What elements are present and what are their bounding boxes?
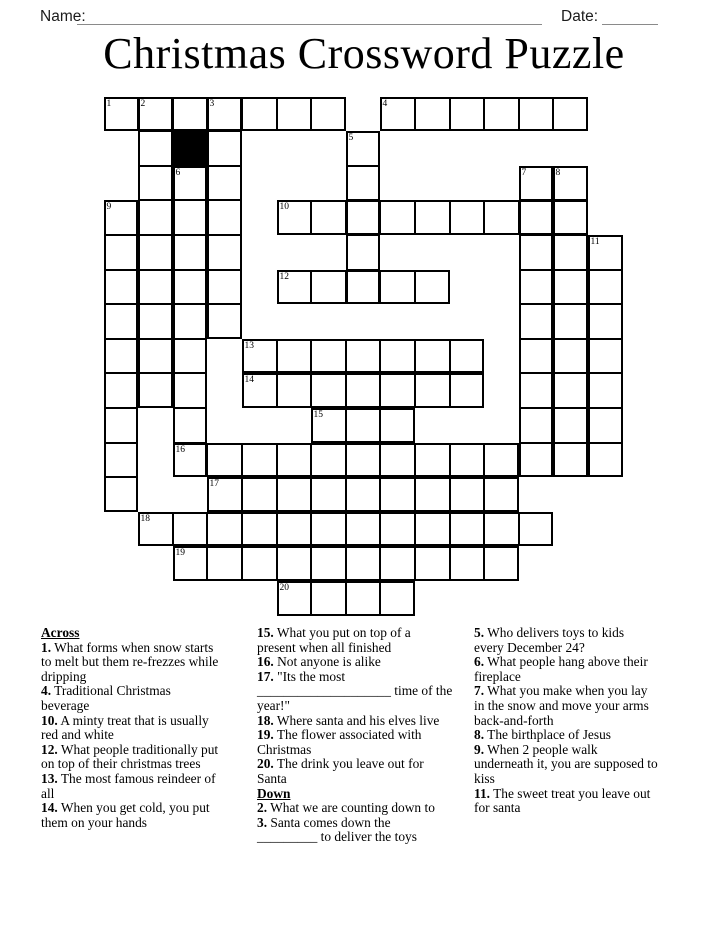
grid-cell [484,443,519,477]
grid-cell [415,200,450,235]
grid-cell [553,339,588,373]
grid-cell [104,408,138,443]
grid-cell [104,373,138,408]
grid-cell [277,512,311,546]
clue-text: What forms when snow starts to melt but … [41,640,218,684]
grid-cell [104,270,138,304]
grid-cell [519,97,553,131]
grid-cell [553,270,588,304]
grid-cell [207,166,242,200]
grid-cell [311,546,346,581]
across-header: Across [41,626,239,641]
cell-number: 11 [591,237,600,247]
cell-number: 4 [383,99,388,109]
clue-text: The drink you leave out for Santa [257,756,424,786]
clue-text: What people hang above their fireplace [474,654,648,684]
grid-cell [311,581,346,616]
clue-item: 12. What people traditionally put on top… [41,743,239,772]
clue-number: 4. [41,683,51,698]
cell-number: 14 [245,375,255,385]
grid-cell [380,200,415,235]
grid-cell [207,131,242,166]
grid-cell [380,581,415,616]
cell-number: 5 [349,133,354,143]
grid-cell [450,339,484,373]
grid-cell [311,200,346,235]
clue-item: 4. Traditional Christmas beverage [41,684,239,713]
grid-cell [311,339,346,373]
clue-number: 8. [474,727,484,742]
grid-cell [104,477,138,512]
grid-cell [519,304,553,339]
grid-cell [450,97,484,131]
cell-number: 8 [556,168,561,178]
clue-number: 3. [257,815,267,830]
grid-cell [588,373,623,408]
grid-cell [415,546,450,581]
clue-text: What people traditionally put on top of … [41,742,218,772]
cell-number: 7 [522,168,527,178]
grid-cell [346,443,380,477]
grid-cell [138,131,173,166]
clue-number: 20. [257,756,274,771]
cell-number: 17 [210,479,220,489]
clue-text: Santa comes down the _________ to delive… [257,815,417,845]
clue-text: What we are counting down to [270,800,435,815]
clue-number: 1. [41,640,51,655]
clue-text: Where santa and his elves live [277,713,440,728]
grid-cell [380,443,415,477]
clue-item: 5. Who delivers toys to kids every Decem… [474,626,671,655]
grid-cell [311,270,346,304]
grid-cell [553,443,588,477]
clue-number: 5. [474,625,484,640]
grid-cell [346,200,380,235]
grid-cell [346,408,380,443]
grid-cell [277,339,311,373]
grid-cell [311,443,346,477]
grid-cell [207,443,242,477]
grid-cell [519,200,553,235]
grid-cell [380,373,415,408]
grid-cell [588,443,623,477]
grid-cell [311,477,346,512]
grid-cell [553,97,588,131]
grid-cell [173,97,207,131]
grid-cell [277,477,311,512]
clue-number: 2. [257,800,267,815]
grid-cell [242,512,277,546]
grid-cell [242,97,277,131]
clue-item: 10. A minty treat that is usually red an… [41,714,239,743]
clue-text: When you get cold, you put them on your … [41,800,210,830]
clue-text: "Its the most ____________________ time … [257,669,452,713]
grid-cell [138,373,173,408]
grid-cell [173,373,207,408]
grid-cell [380,270,415,304]
grid-cell [450,477,484,512]
clue-number: 9. [474,742,484,757]
grid-cell [519,443,553,477]
cell-number: 18 [141,514,151,524]
clue-number: 14. [41,800,58,815]
clues-column-2: 15. What you put on top of a present whe… [257,626,470,845]
grid-cell [415,373,450,408]
grid-cell [519,408,553,443]
grid-cell [346,166,380,200]
grid-cell [207,200,242,235]
clue-number: 11. [474,786,490,801]
grid-cell [104,235,138,270]
grid-cell [519,235,553,270]
grid-cell [484,546,519,581]
clue-number: 7. [474,683,484,698]
grid-cell [588,408,623,443]
grid-cell [415,477,450,512]
grid-cell [380,512,415,546]
grid-cell [588,270,623,304]
grid-cell [173,235,207,270]
clue-text: The most famous reindeer of all [41,771,216,801]
clue-text: What you put on top of a present when al… [257,625,411,655]
cell-number: 13 [245,341,255,351]
grid-cell [242,477,277,512]
grid-cell [173,200,207,235]
grid-cell [138,270,173,304]
clue-text: Not anyone is alike [277,654,381,669]
grid-cell [415,270,450,304]
clue-item: 20. The drink you leave out for Santa [257,757,470,786]
clue-item: 13. The most famous reindeer of all [41,772,239,801]
grid-cell [519,339,553,373]
grid-cell [484,97,519,131]
grid-cell [138,339,173,373]
grid-cell [311,97,346,131]
grid-cell [519,270,553,304]
grid-cell [519,373,553,408]
grid-cell [553,304,588,339]
grid-cell [207,304,242,339]
grid-cell [380,339,415,373]
black-cell [173,131,207,166]
clue-item: 7. What you make when you lay in the sno… [474,684,671,728]
clue-text: The sweet treat you leave out for santa [474,786,650,816]
grid-cell [277,546,311,581]
cell-number: 3 [210,99,215,109]
clue-number: 17. [257,669,274,684]
grid-cell [104,443,138,477]
grid-cell [415,97,450,131]
grid-cell [346,373,380,408]
cell-number: 19 [176,548,186,558]
grid-cell [588,304,623,339]
cell-number: 2 [141,99,146,109]
grid-cell [415,339,450,373]
clue-number: 10. [41,713,58,728]
grid-cell [380,477,415,512]
grid-cell [450,512,484,546]
grid-cell [138,166,173,200]
grid-cell [484,200,519,235]
grid-cell [277,373,311,408]
cell-number: 16 [176,445,186,455]
cell-number: 9 [107,202,112,212]
grid-cell [207,235,242,270]
clue-text: A minty treat that is usually red and wh… [41,713,209,743]
grid-cell [415,443,450,477]
grid-cell [588,339,623,373]
grid-cell [450,200,484,235]
clue-item: 8. The birthplace of Jesus [474,728,671,743]
grid-cell [450,373,484,408]
grid-cell [138,304,173,339]
grid-cell [207,546,242,581]
grid-cell [553,373,588,408]
clue-text: The flower associated with Christmas [257,727,422,757]
grid-cell [415,512,450,546]
clue-number: 15. [257,625,274,640]
down-header: Down [257,787,470,802]
grid-cell [519,512,553,546]
grid-cell [553,408,588,443]
grid-cell [553,235,588,270]
clue-text: Who delivers toys to kids every December… [474,625,624,655]
worksheet-page: Name: Date: Christmas Crossword Puzzle 1… [0,0,728,942]
grid-cell [138,200,173,235]
cell-number: 12 [280,272,290,282]
grid-cell [242,546,277,581]
grid-cell [380,546,415,581]
clue-item: 17. "Its the most ____________________ t… [257,670,470,714]
clue-number: 6. [474,654,484,669]
grid-cell [346,477,380,512]
clue-text: When 2 people walk underneath it, you ar… [474,742,658,786]
clue-item: 18. Where santa and his elves live [257,714,470,729]
clue-item: 14. When you get cold, you put them on y… [41,801,239,830]
clue-item: 11. The sweet treat you leave out for sa… [474,787,671,816]
clues-column-1: Across1. What forms when snow starts to … [41,626,239,830]
clue-text: Traditional Christmas beverage [41,683,171,713]
grid-cell [173,270,207,304]
clue-number: 18. [257,713,274,728]
clue-text: What you make when you lay in the snow a… [474,683,649,727]
grid-cell [346,546,380,581]
cell-number: 20 [280,583,290,593]
grid-cell [207,512,242,546]
clue-text: The birthplace of Jesus [487,727,611,742]
grid-cell [450,546,484,581]
clue-item: 16. Not anyone is alike [257,655,470,670]
grid-cell [450,443,484,477]
grid-cell [346,270,380,304]
grid-cell [242,443,277,477]
grid-cell [104,339,138,373]
clue-item: 1. What forms when snow starts to melt b… [41,641,239,685]
clue-item: 2. What we are counting down to [257,801,470,816]
grid-cell [346,339,380,373]
grid-cell [484,477,519,512]
grid-cell [173,339,207,373]
grid-cell [173,304,207,339]
clue-number: 12. [41,742,58,757]
crossword-grid: 1234567891011121314151617181920 [0,0,728,620]
grid-cell [277,443,311,477]
grid-cell [553,200,588,235]
grid-cell [311,373,346,408]
grid-cell [138,235,173,270]
grid-cell [311,512,346,546]
cell-number: 6 [176,168,181,178]
clue-item: 6. What people hang above their fireplac… [474,655,671,684]
grid-cell [380,408,415,443]
clue-number: 16. [257,654,274,669]
grid-cell [207,270,242,304]
grid-cell [173,408,207,443]
clue-number: 13. [41,771,58,786]
clue-item: 19. The flower associated with Christmas [257,728,470,757]
grid-cell [346,581,380,616]
clues-column-3: 5. Who delivers toys to kids every Decem… [474,626,671,816]
grid-cell [104,304,138,339]
cell-number: 15 [314,410,324,420]
grid-cell [277,97,311,131]
grid-cell [346,512,380,546]
grid-cell [484,512,519,546]
cell-number: 1 [107,99,112,109]
clue-item: 15. What you put on top of a present whe… [257,626,470,655]
clue-number: 19. [257,727,274,742]
cell-number: 10 [280,202,290,212]
grid-cell [173,512,207,546]
clue-item: 3. Santa comes down the _________ to del… [257,816,470,845]
grid-cell [346,235,380,270]
clue-item: 9. When 2 people walk underneath it, you… [474,743,671,787]
